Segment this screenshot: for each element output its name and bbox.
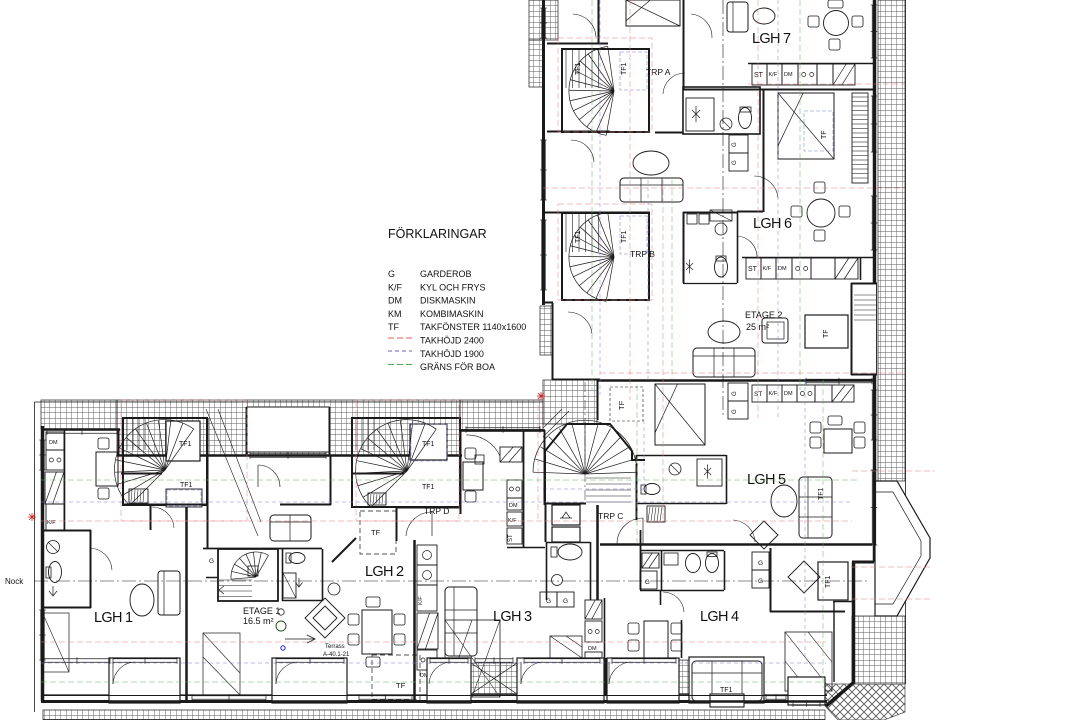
svg-text:G: G (732, 160, 738, 165)
svg-text:TF: TF (821, 130, 828, 139)
svg-text:TF1: TF1 (720, 687, 733, 694)
svg-text:DM: DM (49, 440, 58, 446)
svg-text:25 m²: 25 m² (746, 322, 769, 332)
svg-text:TF1: TF1 (621, 62, 628, 75)
svg-text:LGH 1: LGH 1 (94, 610, 133, 626)
svg-text:TRP B: TRP B (630, 249, 655, 259)
svg-text:TF1: TF1 (825, 575, 832, 588)
svg-text:K/F: K/F (763, 266, 772, 272)
svg-text:FÖRKLARINGAR: FÖRKLARINGAR (388, 227, 487, 241)
svg-text:K/F: K/F (769, 391, 778, 397)
svg-text:Nock: Nock (5, 577, 24, 586)
svg-text:G: G (732, 142, 738, 147)
svg-text:TF: TF (617, 400, 626, 410)
svg-text:ETAGE 1: ETAGE 1 (243, 606, 280, 616)
svg-text:K/F: K/F (418, 596, 424, 605)
svg-text:G: G (546, 598, 551, 605)
svg-text:DM: DM (784, 391, 793, 397)
svg-text:DM: DM (588, 646, 597, 652)
svg-text:TAKHÖJD 2400: TAKHÖJD 2400 (420, 336, 484, 346)
svg-text:TF1: TF1 (575, 62, 582, 75)
svg-text:G: G (209, 558, 214, 565)
svg-text:TF1: TF1 (575, 230, 582, 243)
svg-text:TAKFÖNSTER 1140x1600: TAKFÖNSTER 1140x1600 (420, 322, 526, 332)
svg-text:TF: TF (396, 681, 406, 690)
svg-text:ST: ST (754, 72, 764, 79)
svg-text:LGH 4: LGH 4 (700, 609, 739, 625)
svg-text:G: G (563, 598, 568, 605)
svg-text:G: G (758, 578, 763, 585)
svg-text:KM: KM (388, 309, 402, 319)
svg-text:G: G (732, 391, 738, 396)
svg-text:DM: DM (388, 296, 402, 306)
svg-text:ST: ST (748, 266, 758, 273)
svg-text:TF: TF (823, 329, 830, 338)
svg-text:G: G (758, 560, 763, 567)
svg-text:DM: DM (509, 503, 518, 509)
svg-text:TF: TF (388, 322, 399, 332)
svg-text:K/F: K/F (769, 72, 778, 78)
svg-text:KYL OCH FRYS: KYL OCH FRYS (420, 282, 486, 292)
svg-text:A-40.1-21: A-40.1-21 (323, 652, 350, 658)
svg-text:TF1: TF1 (621, 230, 628, 243)
svg-text:ST: ST (508, 534, 514, 542)
svg-text:DISKMASKIN: DISKMASKIN (420, 296, 476, 306)
svg-text:Terrass: Terrass (325, 644, 345, 650)
svg-text:K/F: K/F (388, 282, 403, 292)
svg-text:KOMBIMASKIN: KOMBIMASKIN (420, 309, 484, 319)
svg-text:TF1: TF1 (180, 482, 193, 489)
svg-text:TF: TF (371, 528, 381, 537)
svg-text:TF1: TF1 (818, 487, 825, 500)
svg-text:G: G (388, 269, 395, 279)
svg-text:LGH 6: LGH 6 (753, 216, 792, 232)
svg-text:G: G (732, 409, 738, 414)
svg-text:TF1: TF1 (422, 441, 435, 448)
svg-text:GRÄNS FÖR BOA: GRÄNS FÖR BOA (420, 362, 495, 372)
svg-text:16.5 m²: 16.5 m² (243, 616, 274, 626)
svg-text:TRP A: TRP A (646, 67, 671, 77)
svg-text:TF1: TF1 (422, 484, 435, 491)
svg-text:LGH 2: LGH 2 (365, 564, 404, 580)
svg-text:GARDEROB: GARDEROB (420, 269, 472, 279)
svg-text:DM: DM (784, 72, 793, 78)
svg-text:DM: DM (778, 266, 787, 272)
svg-text:TAKHÖJD 1900: TAKHÖJD 1900 (420, 349, 484, 359)
svg-text:TRP C: TRP C (598, 511, 623, 521)
